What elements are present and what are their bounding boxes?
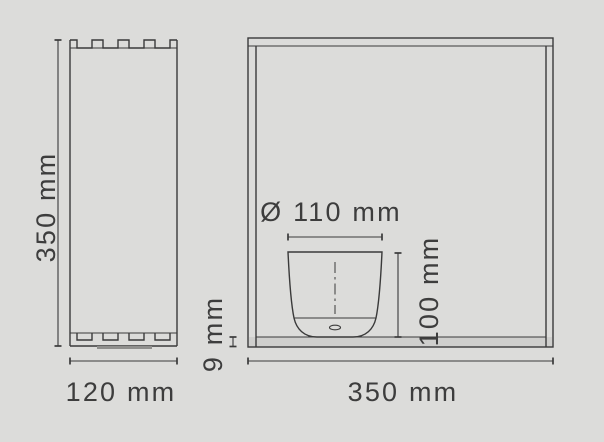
dimension-diagram: 350 mm 120 mm xyxy=(0,0,604,442)
front-view-width-label: 350 mm xyxy=(348,377,459,407)
side-view-top-finger-joint xyxy=(70,40,177,48)
side-view-base-pad xyxy=(97,346,152,349)
front-view xyxy=(248,38,553,347)
cup-diameter-dimension: Ø 110 mm xyxy=(260,197,402,241)
side-view-height-label: 350 mm xyxy=(31,152,61,263)
technical-drawing: 350 mm 120 mm xyxy=(0,0,604,442)
cup-height-dimension: 100 mm xyxy=(395,236,445,347)
base-thickness-label: 9 mm xyxy=(198,296,228,372)
cup-base-slot xyxy=(330,325,341,330)
front-view-outer-frame xyxy=(248,38,553,347)
side-view-bottom-finger-joint xyxy=(77,333,170,340)
base-thickness-dimension: 9 mm xyxy=(198,296,237,372)
side-view xyxy=(70,40,177,349)
front-view-bottom-panel xyxy=(249,337,552,347)
cup-diameter-label: Ø 110 mm xyxy=(260,197,402,227)
side-view-width-dimension: 120 mm xyxy=(66,358,177,408)
side-view-height-dimension: 350 mm xyxy=(31,40,62,346)
side-view-width-label: 120 mm xyxy=(66,377,177,407)
cup-height-label: 100 mm xyxy=(414,236,444,347)
front-view-width-dimension: 350 mm xyxy=(248,358,553,408)
